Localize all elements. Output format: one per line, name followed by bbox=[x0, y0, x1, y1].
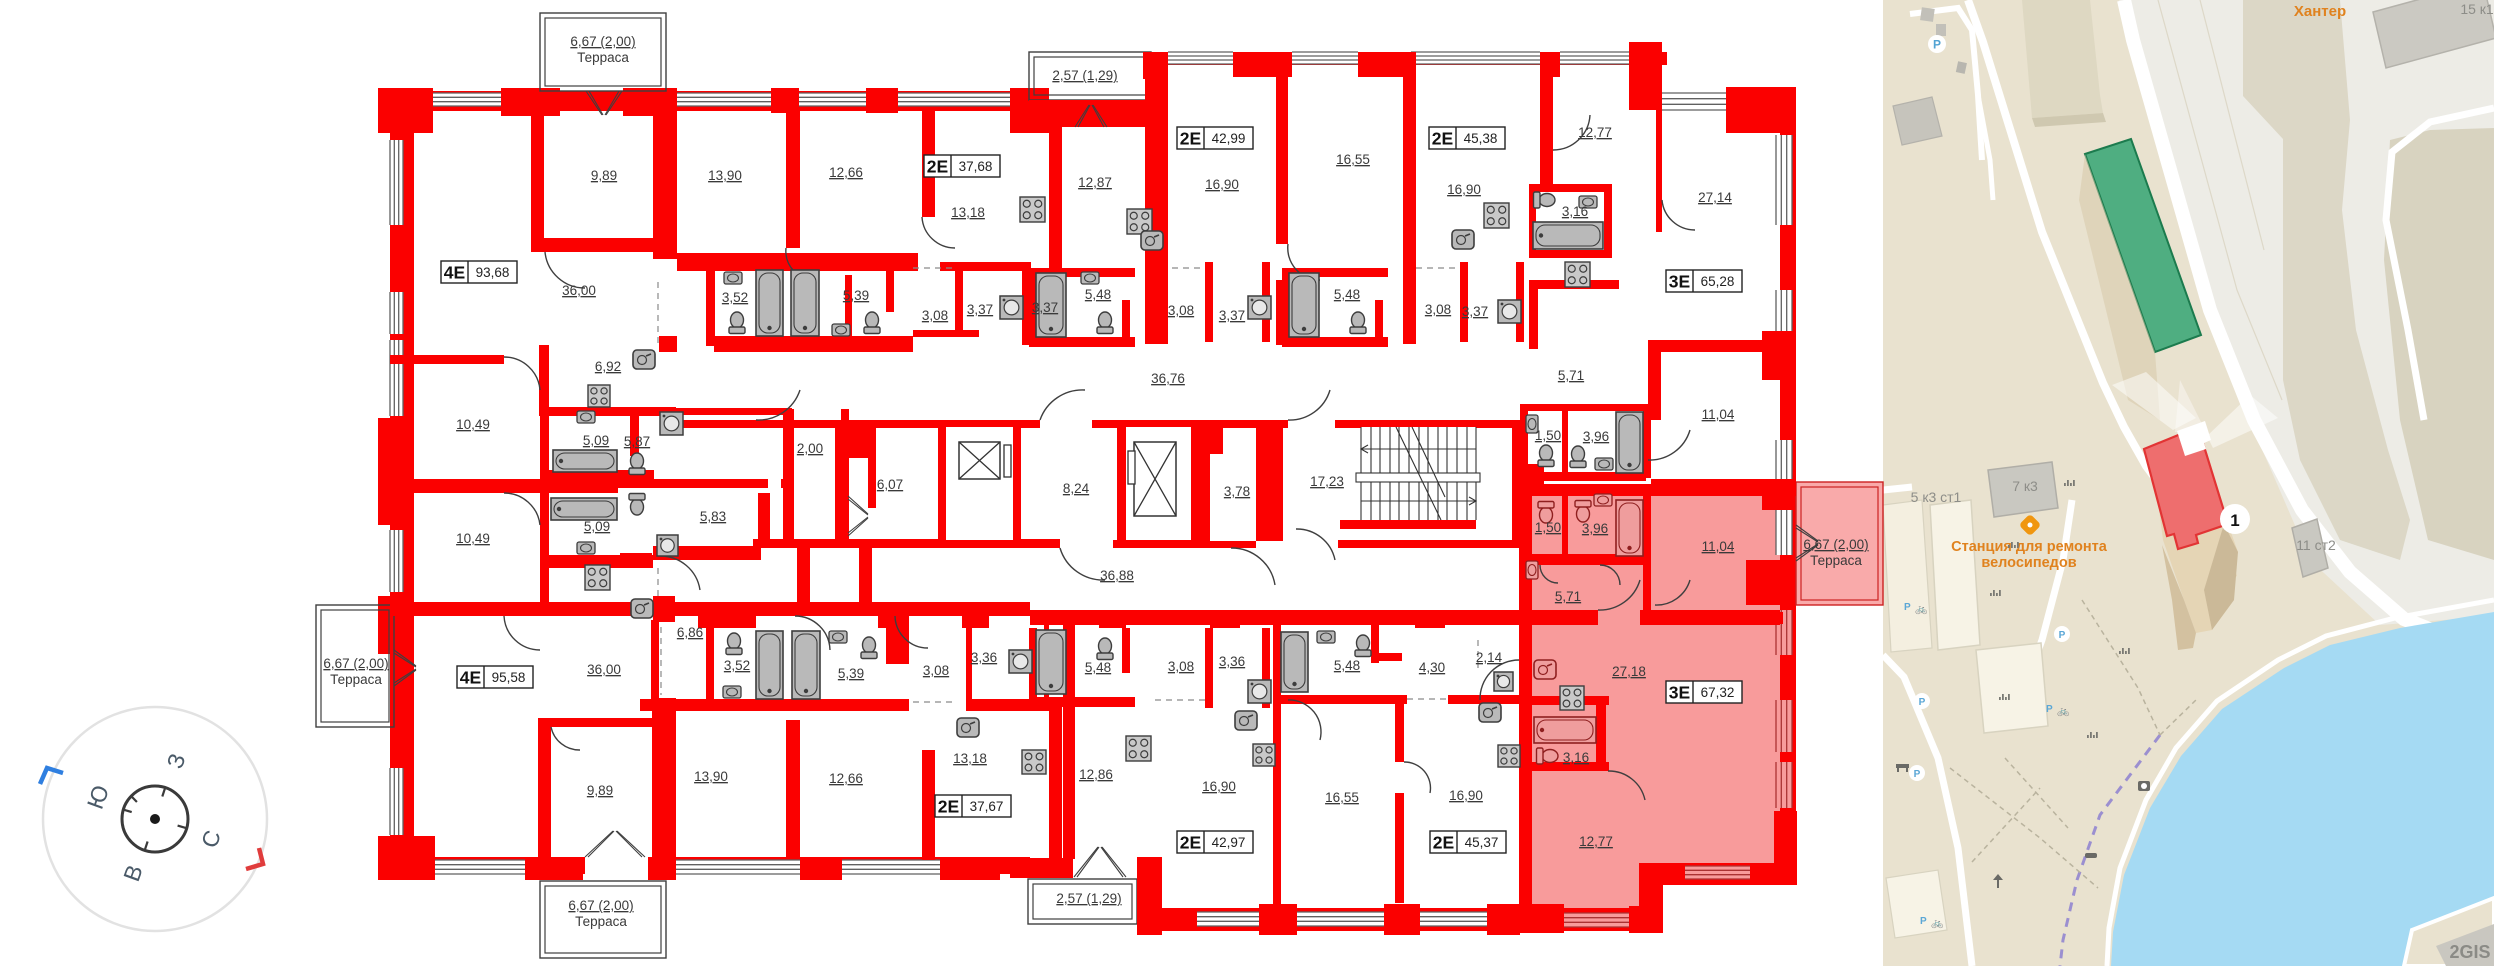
svg-text:65,28: 65,28 bbox=[1701, 274, 1735, 289]
svg-text:17,23: 17,23 bbox=[1310, 474, 1344, 489]
svg-text:6,67 (2,00): 6,67 (2,00) bbox=[323, 656, 388, 671]
svg-text:5 к3 ст1: 5 к3 ст1 bbox=[1911, 489, 1962, 505]
svg-text:27,14: 27,14 bbox=[1698, 190, 1732, 205]
svg-text:1,50: 1,50 bbox=[1535, 428, 1561, 443]
svg-text:3,36: 3,36 bbox=[1219, 654, 1245, 669]
svg-text:12,86: 12,86 bbox=[1079, 767, 1113, 782]
svg-text:3,78: 3,78 bbox=[1224, 484, 1250, 499]
svg-text:12,77: 12,77 bbox=[1578, 125, 1612, 140]
svg-text:13,18: 13,18 bbox=[951, 205, 985, 220]
svg-text:3,52: 3,52 bbox=[722, 290, 748, 305]
svg-text:16,90: 16,90 bbox=[1205, 177, 1239, 192]
svg-text:45,38: 45,38 bbox=[1464, 131, 1498, 146]
svg-text:8,24: 8,24 bbox=[1063, 481, 1090, 496]
svg-text:45,37: 45,37 bbox=[1465, 835, 1499, 850]
svg-text:5,48: 5,48 bbox=[1334, 287, 1360, 302]
svg-text:4Е: 4Е bbox=[460, 668, 481, 688]
svg-text:Станция для ремонта: Станция для ремонта bbox=[1951, 539, 2108, 555]
svg-text:2Е: 2Е bbox=[1432, 129, 1453, 149]
svg-text:15 к1: 15 к1 bbox=[2460, 1, 2494, 17]
svg-text:6,07: 6,07 bbox=[877, 477, 903, 492]
svg-text:2,57 (1,29): 2,57 (1,29) bbox=[1052, 68, 1117, 83]
svg-text:12,66: 12,66 bbox=[829, 165, 863, 180]
svg-text:P: P bbox=[1933, 38, 1941, 52]
svg-text:5,48: 5,48 bbox=[1085, 660, 1111, 675]
svg-text:6,67 (2,00): 6,67 (2,00) bbox=[568, 898, 633, 913]
svg-text:Терраса: Терраса bbox=[330, 672, 382, 687]
svg-text:10,49: 10,49 bbox=[456, 531, 490, 546]
svg-text:2Е: 2Е bbox=[1180, 833, 1201, 853]
svg-text:37,68: 37,68 bbox=[959, 159, 993, 174]
svg-text:3,37: 3,37 bbox=[1219, 308, 1245, 323]
svg-text:16,55: 16,55 bbox=[1325, 790, 1359, 805]
svg-text:7 к3: 7 к3 bbox=[2012, 478, 2038, 494]
svg-text:16,90: 16,90 bbox=[1447, 182, 1481, 197]
svg-text:Терраса: Терраса bbox=[1810, 553, 1862, 568]
svg-text:11,04: 11,04 bbox=[1702, 407, 1735, 422]
svg-text:93,68: 93,68 bbox=[476, 265, 510, 280]
svg-text:1: 1 bbox=[2230, 511, 2239, 530]
svg-text:3,08: 3,08 bbox=[923, 663, 949, 678]
svg-text:P: P bbox=[2059, 630, 2066, 641]
svg-text:10,49: 10,49 bbox=[456, 417, 490, 432]
svg-text:42,97: 42,97 bbox=[1212, 835, 1246, 850]
svg-text:P: P bbox=[1904, 602, 1911, 613]
svg-text:16,90: 16,90 bbox=[1202, 779, 1236, 794]
svg-text:3,37: 3,37 bbox=[1462, 304, 1488, 319]
svg-text:🚲: 🚲 bbox=[2057, 706, 2069, 717]
svg-text:3,37: 3,37 bbox=[967, 302, 993, 317]
svg-text:5,09: 5,09 bbox=[584, 519, 610, 534]
svg-text:2GIS: 2GIS bbox=[2449, 942, 2490, 962]
svg-text:11,04: 11,04 bbox=[1702, 539, 1735, 554]
svg-text:5,09: 5,09 bbox=[583, 433, 609, 448]
svg-text:12,77: 12,77 bbox=[1579, 834, 1613, 849]
svg-text:2Е: 2Е bbox=[1433, 833, 1454, 853]
svg-text:3,08: 3,08 bbox=[1425, 302, 1451, 317]
svg-text:Терраса: Терраса bbox=[577, 50, 629, 65]
svg-text:13,90: 13,90 bbox=[694, 769, 728, 784]
svg-text:3,96: 3,96 bbox=[1583, 429, 1609, 444]
svg-text:5,71: 5,71 bbox=[1555, 589, 1581, 604]
svg-text:3,08: 3,08 bbox=[922, 308, 948, 323]
svg-text:3,36: 3,36 bbox=[971, 650, 997, 665]
svg-text:P: P bbox=[1920, 916, 1927, 927]
svg-text:2,00: 2,00 bbox=[797, 441, 823, 456]
svg-text:Хантер: Хантер bbox=[2294, 3, 2346, 20]
svg-text:36,88: 36,88 bbox=[1100, 568, 1134, 583]
svg-text:3,96: 3,96 bbox=[1582, 521, 1608, 536]
svg-text:1,50: 1,50 bbox=[1535, 520, 1561, 535]
svg-text:5,39: 5,39 bbox=[838, 666, 864, 681]
svg-text:36,76: 36,76 bbox=[1151, 371, 1185, 386]
svg-text:2,14: 2,14 bbox=[1476, 650, 1503, 665]
svg-text:🚲: 🚲 bbox=[1915, 604, 1927, 615]
svg-text:13,18: 13,18 bbox=[953, 751, 987, 766]
svg-text:P: P bbox=[2046, 704, 2053, 715]
svg-text:Терраса: Терраса bbox=[575, 914, 627, 929]
svg-text:3,08: 3,08 bbox=[1168, 659, 1194, 674]
svg-text:95,58: 95,58 bbox=[492, 670, 526, 685]
svg-text:2,57 (1,29): 2,57 (1,29) bbox=[1056, 891, 1121, 906]
svg-text:3,52: 3,52 bbox=[724, 658, 750, 673]
svg-text:2Е: 2Е bbox=[938, 797, 959, 817]
svg-text:12,87: 12,87 bbox=[1078, 175, 1112, 190]
svg-text:велосипедов: велосипедов bbox=[1981, 555, 2076, 571]
svg-text:5,71: 5,71 bbox=[1558, 368, 1584, 383]
svg-text:16,55: 16,55 bbox=[1336, 152, 1370, 167]
svg-text:12,66: 12,66 bbox=[829, 771, 863, 786]
svg-text:27,18: 27,18 bbox=[1612, 664, 1646, 679]
svg-text:6,67 (2,00): 6,67 (2,00) bbox=[570, 34, 635, 49]
svg-text:6,67 (2,00): 6,67 (2,00) bbox=[1803, 537, 1868, 552]
svg-text:3Е: 3Е bbox=[1669, 683, 1690, 703]
svg-text:6,92: 6,92 bbox=[595, 359, 621, 374]
svg-text:5,48: 5,48 bbox=[1085, 287, 1111, 302]
svg-text:13,90: 13,90 bbox=[708, 168, 742, 183]
svg-text:P: P bbox=[1919, 697, 1926, 708]
svg-text:5,87: 5,87 bbox=[624, 434, 650, 449]
svg-text:36,00: 36,00 bbox=[587, 662, 621, 677]
svg-text:9,89: 9,89 bbox=[591, 168, 617, 183]
svg-text:P: P bbox=[1914, 769, 1921, 780]
svg-text:3,16: 3,16 bbox=[1563, 750, 1589, 765]
svg-text:6,86: 6,86 bbox=[677, 625, 703, 640]
svg-text:37,67: 37,67 bbox=[970, 799, 1004, 814]
svg-text:36,00: 36,00 bbox=[562, 283, 596, 298]
svg-text:3,08: 3,08 bbox=[1168, 303, 1194, 318]
svg-text:5,83: 5,83 bbox=[700, 509, 726, 524]
svg-text:4Е: 4Е bbox=[444, 263, 465, 283]
svg-text:4,30: 4,30 bbox=[1419, 660, 1445, 675]
svg-text:67,32: 67,32 bbox=[1701, 685, 1735, 700]
svg-text:9,89: 9,89 bbox=[587, 783, 613, 798]
svg-text:42,99: 42,99 bbox=[1212, 131, 1246, 146]
svg-text:5,48: 5,48 bbox=[1334, 658, 1360, 673]
svg-text:5,39: 5,39 bbox=[843, 288, 869, 303]
svg-text:3,16: 3,16 bbox=[1562, 204, 1588, 219]
svg-text:3Е: 3Е bbox=[1669, 272, 1690, 292]
svg-text:2Е: 2Е bbox=[927, 157, 948, 177]
svg-text:2Е: 2Е bbox=[1180, 129, 1201, 149]
svg-text:11 ст2: 11 ст2 bbox=[2296, 537, 2336, 553]
svg-text:16,90: 16,90 bbox=[1449, 788, 1483, 803]
svg-text:🚲: 🚲 bbox=[1931, 918, 1943, 929]
svg-text:3,37: 3,37 bbox=[1032, 300, 1058, 315]
